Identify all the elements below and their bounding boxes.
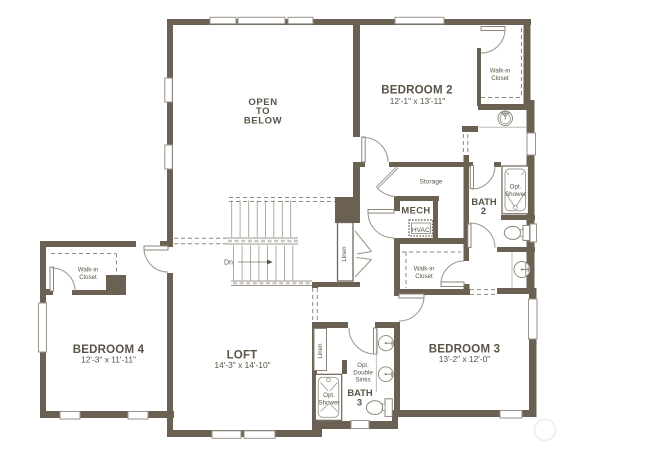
svg-text:Walk-in: Walk-in [78, 267, 99, 274]
svg-text:BEDROOM 2: BEDROOM 2 [381, 85, 452, 97]
svg-text:13'-2" x 12'-0": 13'-2" x 12'-0" [439, 354, 491, 364]
svg-text:3: 3 [357, 397, 362, 408]
svg-text:Walk-in: Walk-in [490, 68, 511, 75]
svg-text:Shower: Shower [319, 400, 340, 407]
svg-text:Closet: Closet [491, 75, 509, 82]
svg-text:Double: Double [353, 370, 373, 377]
svg-text:12'-1" x 13'-11": 12'-1" x 13'-11" [390, 96, 446, 106]
svg-text:Opt.: Opt. [357, 362, 369, 369]
svg-text:Closet: Closet [79, 274, 97, 281]
svg-text:Opt.: Opt. [510, 184, 522, 191]
svg-text:2: 2 [481, 205, 486, 216]
svg-text:Linen: Linen [341, 246, 348, 262]
svg-text:Storage: Storage [419, 179, 442, 186]
svg-text:MECH: MECH [401, 205, 430, 216]
svg-text:Closet: Closet [415, 273, 433, 280]
svg-text:Dn: Dn [224, 260, 233, 267]
svg-text:Opt.: Opt. [323, 392, 335, 399]
svg-text:Walk-in: Walk-in [414, 266, 435, 273]
svg-text:Sinks: Sinks [355, 377, 370, 384]
svg-text:12'-3" x 11'-11": 12'-3" x 11'-11" [81, 355, 136, 365]
svg-text:Shower: Shower [505, 191, 526, 198]
svg-text:Linen: Linen [317, 343, 324, 359]
svg-text:HVAC: HVAC [412, 227, 430, 234]
svg-text:14'-3" x 14'-10": 14'-3" x 14'-10" [214, 360, 270, 370]
svg-text:BELOW: BELOW [244, 116, 282, 127]
